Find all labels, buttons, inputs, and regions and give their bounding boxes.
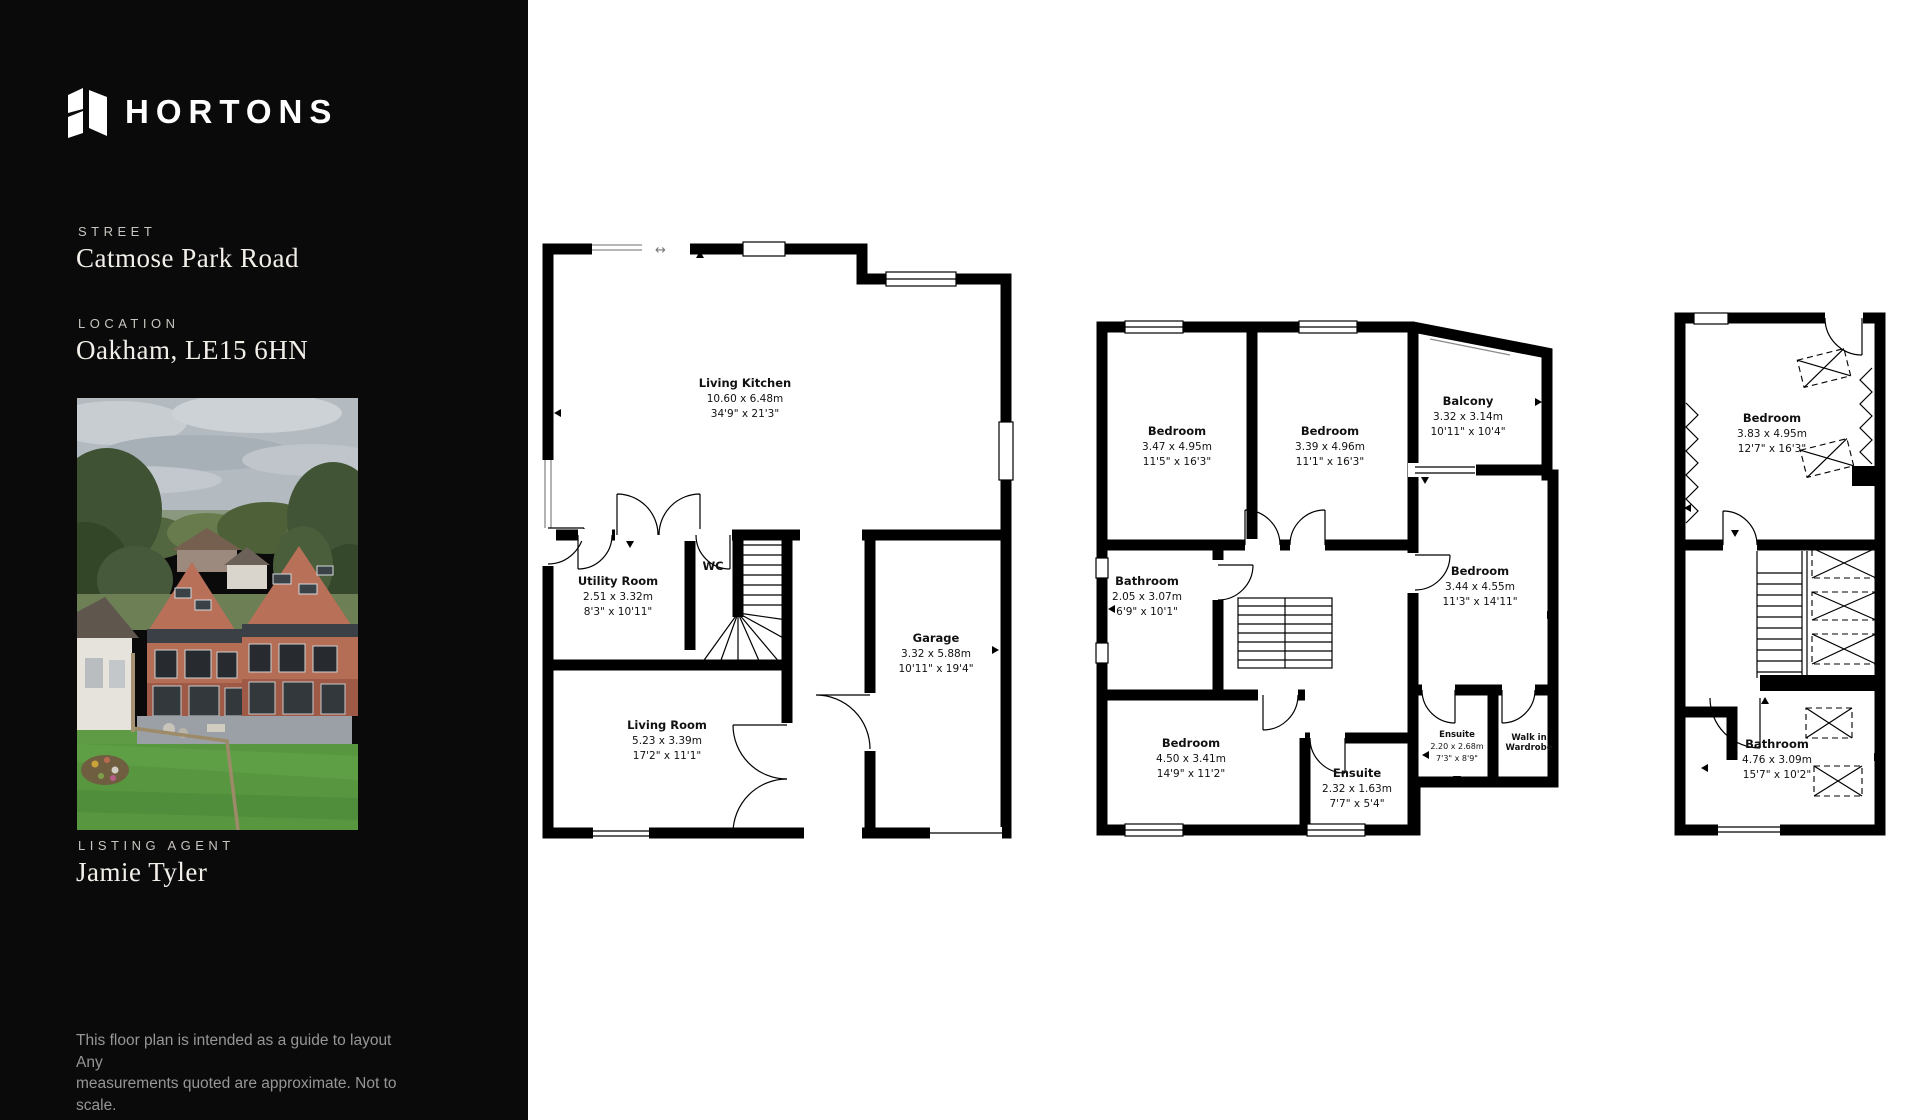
brand-logo: HORTONS	[66, 86, 338, 138]
room-label-bedroom3: Bedroom 3.44 x 4.55m 11'3" x 14'11"	[1442, 563, 1517, 610]
room-label-bedroom1: Bedroom 3.47 x 4.95m 11'5" x 16'3"	[1142, 423, 1212, 470]
disclaimer-line2: measurements quoted are approximate. Not…	[76, 1075, 397, 1114]
room-label-balcony: Balcony 3.32 x 3.14m 10'11" x 10'4"	[1430, 393, 1505, 440]
agent-value: Jamie Tyler	[76, 857, 207, 888]
street-label: STREET	[78, 224, 156, 239]
disclaimer: This floor plan is intended as a guide t…	[76, 1030, 416, 1117]
room-label-bedroom4: Bedroom 4.50 x 3.41m 14'9" x 11'2"	[1156, 735, 1226, 782]
room-label-bathroom: Bathroom 2.05 x 3.07m 6'9" x 10'1"	[1112, 573, 1182, 620]
first-floor-plan: Bedroom 3.47 x 4.95m 11'5" x 16'3" Bedro…	[1095, 315, 1570, 840]
stairs-icon	[1757, 551, 1807, 678]
location-value: Oakham, LE15 6HN	[76, 335, 308, 366]
disclaimer-line1: This floor plan is intended as a guide t…	[76, 1032, 391, 1071]
room-label-garage: Garage 3.32 x 5.88m 10'11" x 19'4"	[898, 630, 973, 677]
brand-name: HORTONS	[125, 93, 338, 131]
room-label-wc: WC	[702, 558, 723, 575]
hortons-logo-icon	[66, 86, 110, 138]
room-label-utility: Utility Room 2.51 x 3.32m 8'3" x 10'11"	[578, 573, 658, 620]
stairs-icon	[1238, 598, 1332, 668]
room-label-bedroom: Bedroom 3.83 x 4.95m 12'7" x 16'3"	[1737, 410, 1807, 457]
agent-label: LISTING AGENT	[78, 838, 235, 853]
room-label-wardrobe: Walk in Wardrobe	[1505, 733, 1553, 753]
room-label-living-kitchen: Living Kitchen 10.60 x 6.48m 34'9" x 21'…	[699, 375, 791, 422]
property-photo	[77, 398, 358, 830]
svg-text:↔: ↔	[655, 243, 666, 258]
ground-floor-drawing: ↔	[540, 235, 1020, 845]
room-label-bathroom: Bathroom 4.76 x 3.09m 15'7" x 10'2"	[1742, 736, 1812, 783]
second-floor-plan: Bedroom 3.83 x 4.95m 12'7" x 16'3" Bathr…	[1672, 308, 1887, 843]
room-label-ensuite1: Ensuite 2.32 x 1.63m 7'7" x 5'4"	[1322, 765, 1392, 812]
ground-floor-plan: ↔	[540, 235, 1020, 845]
room-label-ensuite2: Ensuite 2.20 x 2.68m 7'3" x 8'9"	[1430, 729, 1483, 765]
room-label-bedroom2: Bedroom 3.39 x 4.96m 11'1" x 16'3"	[1295, 423, 1365, 470]
room-label-living-room: Living Room 5.23 x 3.39m 17'2" x 11'1"	[627, 717, 707, 764]
property-photo-illustration	[77, 398, 358, 830]
street-value: Catmose Park Road	[76, 243, 299, 274]
sidebar: HORTONS STREET Catmose Park Road LOCATIO…	[0, 0, 528, 1120]
skylights	[1797, 349, 1876, 796]
location-label: LOCATION	[78, 316, 180, 331]
